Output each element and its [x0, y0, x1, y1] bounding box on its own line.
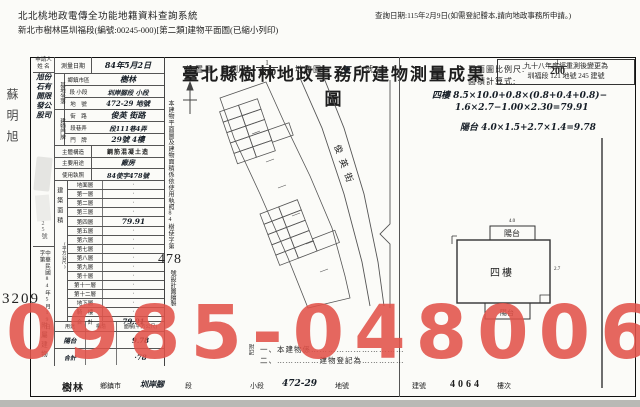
plan-basis-note-upper: 本建物平面圖及建物面積係依使用執照84樹使字第	[167, 100, 173, 252]
site-row-label: 鄉鎮市區	[65, 76, 92, 84]
site-group-label: 基地坐落	[55, 74, 65, 109]
floor-row-label: 第五層	[68, 227, 103, 235]
floor-row-label: 第十層	[68, 272, 103, 280]
plan-basis-note-bignum: 478	[158, 252, 182, 268]
floor-row-label: 第六層	[68, 236, 103, 244]
floor-row-value: ·	[103, 191, 164, 197]
main-floor-label: 四樓	[490, 266, 514, 279]
site-row-value: 圳岸腳段 小段	[92, 87, 164, 97]
floor-row-value: ·	[103, 228, 164, 234]
door-row-value: 29號 4樓	[92, 134, 164, 145]
floor-row-value: ·	[103, 282, 164, 288]
applicant-address-visible: 25號	[40, 221, 46, 239]
watermark-phone-number: 0985-048006	[6, 296, 640, 370]
scan-edge	[0, 400, 640, 407]
door-row-label: 門 牌	[65, 136, 92, 144]
margin-stamp-name: 蘇明旭	[6, 88, 18, 151]
location-map-title: 位置圖	[185, 64, 215, 75]
scanned-survey-document: 北北桃地政電傳全功能地籍資料查詢系統 查詢日期:115年2月9日(如需登記謄本,…	[0, 0, 640, 407]
footer-floor-label: 樓次	[497, 381, 511, 391]
area-calc-label: 面積計算式:	[468, 76, 516, 87]
query-date: 查詢日期:115年2月9日(如需登記謄本,請向地政事務所申請。)	[375, 10, 571, 21]
floor-row-label: 第四層	[68, 217, 103, 226]
site-row-value: 472-29 地號	[92, 99, 164, 109]
scale-numerator: 1	[556, 59, 560, 66]
floor-row-label: 第十一層	[68, 281, 103, 289]
applicant-label-2: 姓 名	[33, 64, 54, 71]
location-map-scale-fraction: 1 1200	[256, 60, 278, 77]
usage-label: 主要用途	[55, 158, 92, 168]
floor-row-label: 第二層	[68, 199, 103, 207]
stamp-smudge-icon	[35, 194, 51, 221]
footer-bno-label: 建號	[412, 381, 426, 391]
license-value: 84使字478號	[92, 170, 164, 180]
floor-row-value: ·	[103, 273, 164, 279]
scale-numerator: 1	[265, 60, 269, 67]
door-row-label: 段巷弄	[65, 124, 92, 132]
balcony-top-label: 陽台	[504, 228, 520, 238]
area-formula-1: 四樓 8.5×10.0+0.8×(0.8+0.4+0.8)−	[432, 88, 607, 101]
site-row-label: 段 小段	[65, 88, 92, 96]
floor-row-value: ·	[103, 209, 164, 215]
scale-denominator: 200	[548, 66, 567, 77]
floor-row-label: 第九層	[68, 263, 103, 271]
floor-row-label: 第七層	[68, 245, 103, 253]
footer-town: 樹林	[62, 379, 84, 394]
floor-row-value: ·	[103, 255, 164, 261]
door-group-label: 建物門牌	[55, 110, 65, 145]
floor-row-value: ·	[103, 246, 164, 252]
footer-section-label: 段	[185, 381, 192, 391]
doc-line: 新北市樹林區圳福段(編號:00245-000)[第二類]建物平面圖(已縮小列印)	[18, 24, 278, 36]
floor-row-value: ·	[103, 237, 164, 243]
structure-label: 主體構造	[55, 146, 92, 157]
site-row-label: 地 號	[65, 100, 92, 108]
door-row-value: 段111巷4弄	[92, 123, 164, 133]
stamp-smudge-icon	[33, 156, 52, 191]
door-row-label: 街 路	[65, 112, 92, 120]
floor-row-value: ·	[103, 182, 164, 188]
footer-parcel-label: 地號	[335, 381, 349, 391]
footer-bno: 4064	[450, 379, 482, 390]
footer-section: 圳岸腳	[140, 379, 164, 390]
floor-row-label: 第三層	[68, 208, 103, 216]
applicant-name-left: 份有限公司	[44, 73, 52, 151]
system-title: 北北桃地政電傳全功能地籍資料查詢系統	[18, 8, 198, 22]
cadastral-sheet-label: 地籍圖	[295, 64, 322, 75]
floor-row-value: ·	[103, 200, 164, 206]
structure-value: 鋼筋混凝土造	[92, 147, 164, 156]
plan-scale-fraction: 1 200	[548, 59, 567, 77]
cadastral-sheet-no: 五	[342, 63, 351, 76]
door-row-value: 俊英 街路	[92, 110, 164, 121]
survey-date-value: 84年5月2日	[92, 60, 164, 71]
floor-row-value: 79.91	[103, 217, 164, 226]
footer-subsection-label: 小段	[250, 381, 264, 391]
location-map-scale-label: 比例尺:	[222, 64, 248, 75]
area-formula-2: 1.6×2.7−1.00×2.30=79.91	[455, 103, 589, 113]
plan-scale-label: 平面圖比例尺:	[468, 64, 525, 75]
cadastral-sheet-suffix: 號	[365, 64, 373, 75]
applicant-address-stamp: 25號	[33, 151, 54, 247]
area-formula-3: 陽台 4.0×1.5+2.7×1.4=9.78	[460, 120, 596, 133]
floor-row-label: 第一層	[68, 190, 103, 198]
floor-row-label: 第八層	[68, 254, 103, 262]
floor-row-value: ·	[103, 264, 164, 270]
license-label: 使用執照	[55, 169, 92, 180]
dim-label-top: 4.0	[509, 219, 516, 224]
street-name-label: 俊英街	[332, 143, 358, 189]
applicant-label-1: 申請人	[33, 57, 54, 64]
footer-parcel: 472-29	[282, 379, 317, 389]
dim-label-right: 2.7	[554, 267, 561, 272]
floor-row-label: 地面層	[68, 181, 103, 189]
survey-date-label: 測量日期	[55, 57, 92, 73]
footer-town-label: 鄉鎮市	[100, 381, 121, 391]
site-row-value: 樹林	[92, 74, 164, 85]
usage-value: 廠房	[92, 158, 164, 168]
